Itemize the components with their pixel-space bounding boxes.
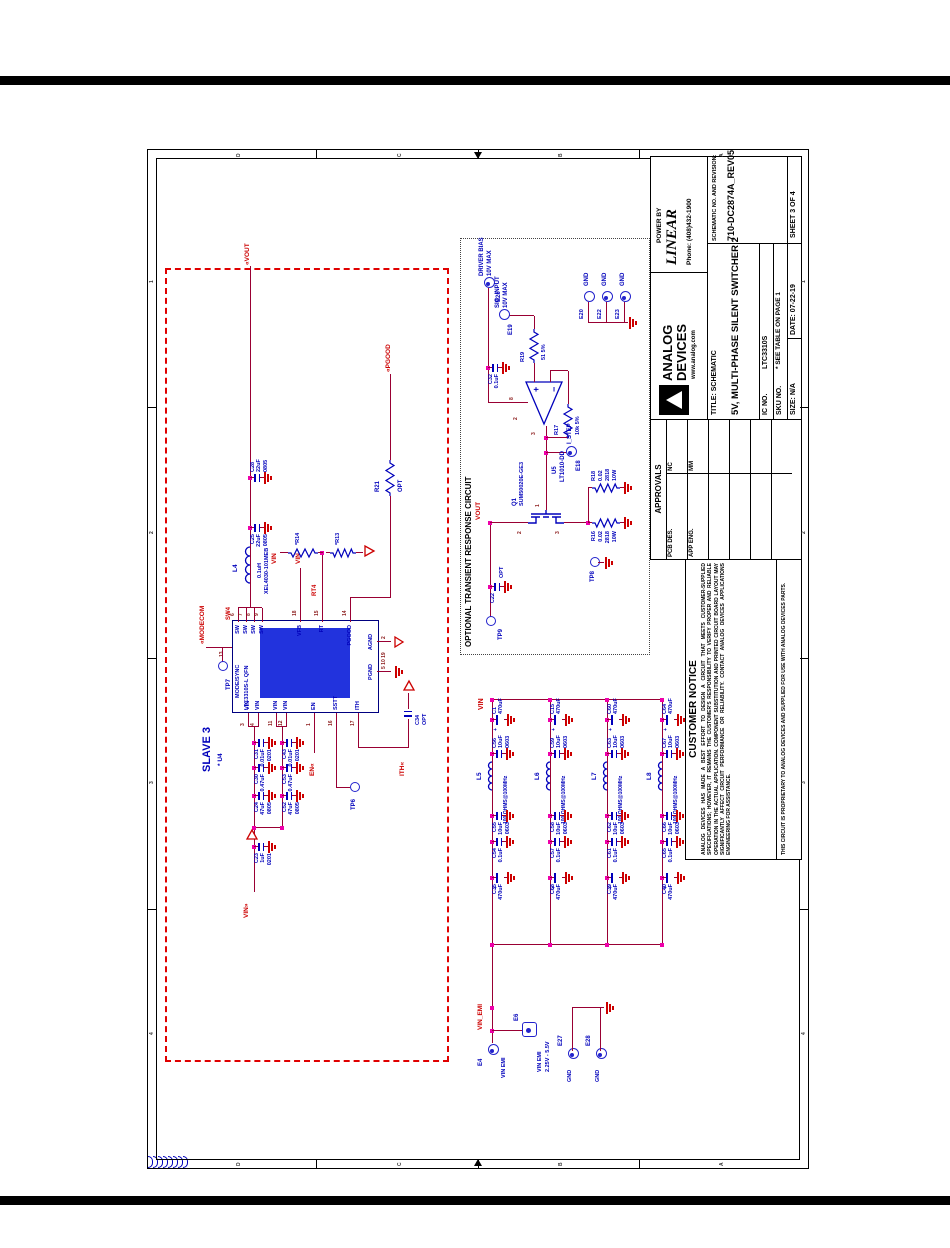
wire: [358, 747, 408, 748]
ground-icon: [632, 319, 634, 327]
ground-icon: [683, 876, 685, 880]
ground-icon: [679, 750, 681, 758]
pin-number: 5 10 19: [382, 652, 387, 669]
net-ith: ITH«: [400, 762, 407, 776]
center-mark-arrow: [474, 1159, 482, 1166]
wire: [572, 1008, 573, 1051]
zone-label: 4: [149, 1032, 155, 1035]
zone-tick: [316, 1160, 317, 1168]
cap-label: 0.1uF: [495, 374, 501, 388]
cap-plate: [611, 812, 613, 820]
approvals-table: APPROVALS PCB DES.NCAPP ENG.MM: [650, 418, 802, 560]
cap-plate: [494, 583, 496, 591]
cap-plate: [496, 873, 498, 883]
resistor-icon: [288, 549, 318, 557]
ground-icon: [611, 561, 613, 565]
wire: [390, 374, 391, 460]
wire: [262, 608, 263, 622]
linear-logo: LINEAR: [665, 209, 680, 265]
wire: [490, 523, 491, 618]
inductor-icon: [655, 762, 664, 790]
ground-icon: [630, 486, 632, 490]
label: 2: [514, 417, 519, 420]
ground-icon: [570, 752, 572, 756]
zone-label: 1: [801, 280, 807, 283]
ground-icon: [570, 814, 572, 818]
approvals-row: APP ENG.MM: [687, 419, 708, 559]
label: E22: [598, 309, 604, 319]
junction-dot: [490, 698, 494, 702]
date-value: DATE: 07-22-19: [790, 284, 797, 335]
ground-icon: [506, 836, 508, 848]
wire: [572, 1007, 604, 1008]
ground-icon: [509, 838, 511, 846]
cap-plate: [259, 524, 261, 532]
label: R19: [521, 352, 527, 362]
label: SUM50020E-GE3: [520, 462, 526, 506]
inductor-label: L8: [647, 772, 654, 780]
ground-icon: [268, 762, 270, 774]
zone-tick: [800, 658, 808, 659]
cap-label: 0201: [268, 853, 274, 865]
approvals-row: [771, 419, 792, 559]
customer-notice-box: CUSTOMER NOTICE ANALOG DEVICES HAS MADE …: [685, 558, 778, 860]
cap-label: 0603: [506, 736, 512, 748]
ground-icon: [268, 737, 270, 749]
approval-role: [709, 473, 729, 559]
schematic-title: 5V, MULTI-PHASE SILENT SWITCHER 2: [731, 237, 741, 415]
label: 0.1uH: [258, 563, 264, 578]
label: +: [494, 728, 499, 731]
approval-role: [751, 473, 771, 559]
label: E27: [558, 1035, 564, 1046]
label: 10V MAX: [503, 282, 509, 308]
cap-plate: [671, 812, 673, 820]
resistor-icon: [330, 549, 356, 557]
ground-icon: [635, 321, 637, 325]
net-modecom: «MODECOM: [200, 606, 207, 644]
ground-icon: [395, 666, 397, 678]
ground-icon: [564, 810, 566, 822]
wire: [408, 693, 409, 709]
ground-icon: [627, 484, 629, 492]
cap-plate: [497, 364, 499, 372]
pin-name: RT: [320, 625, 326, 632]
label: +: [552, 728, 557, 731]
cap-label: 0201: [296, 749, 302, 761]
approvals-row: PCB DES.NC: [666, 419, 687, 559]
wire: [550, 370, 568, 371]
zone-tick: [639, 150, 640, 158]
approval-role: [730, 473, 750, 559]
turret-icon: [584, 292, 595, 303]
approval-role: [772, 473, 792, 559]
label: * U4: [218, 753, 225, 766]
revision-cell: SCHEMATIC NO. AND REVISION: 710-DC2874A_…: [707, 157, 788, 244]
wire: [377, 671, 391, 672]
net-pgood: «PGOOD: [386, 344, 393, 372]
ground-icon: [676, 810, 678, 822]
net-en: EN«: [310, 763, 317, 776]
open-arrow-icon: [246, 828, 258, 840]
cap-label: 470uF: [614, 698, 620, 714]
cap-label: 470uF: [557, 884, 563, 900]
approvals-row: [708, 419, 729, 559]
ground-icon: [299, 792, 301, 800]
inductor-label: L7: [592, 772, 599, 780]
revision-label: SCHEMATIC NO. AND REVISION:: [713, 155, 719, 241]
turret-dot: [598, 1053, 602, 1057]
open-arrow-icon: [364, 545, 376, 557]
cap-label: 470uF: [614, 884, 620, 900]
ground-icon: [296, 737, 298, 749]
opamp-icon: +−: [524, 380, 564, 426]
zone-label: A: [719, 153, 725, 157]
junction-dot: [605, 943, 609, 947]
agnd-arrow-icon: [394, 636, 404, 648]
ground-icon: [567, 838, 569, 846]
ground-icon: [609, 1004, 611, 1012]
label: OPT: [423, 714, 429, 725]
ground-icon: [567, 812, 569, 820]
wire: [336, 727, 337, 788]
pin-name: SW: [252, 625, 258, 634]
junction-dot: [280, 826, 284, 830]
title-label: TITLE: SCHEMATIC: [711, 350, 718, 415]
zone-label: 1: [149, 280, 155, 283]
cap-plate: [496, 715, 498, 725]
label: 51 5%: [542, 344, 548, 360]
label: +: [609, 728, 614, 731]
cap-label: 0.47uF: [289, 774, 295, 791]
ground-icon: [512, 840, 514, 844]
label: TP9: [498, 629, 504, 640]
pin-name: EN: [312, 702, 318, 710]
pin-number: 2: [382, 636, 387, 639]
ground-icon: [564, 748, 566, 760]
zone-tick: [800, 909, 808, 910]
label: 2.25V - 5.5V: [546, 1041, 552, 1072]
cap-plate: [666, 873, 668, 883]
ground-icon: [627, 752, 629, 756]
zone-label: 3: [801, 781, 807, 784]
zone-label: C: [397, 153, 403, 157]
ground-icon: [509, 812, 511, 820]
ground-icon: [677, 872, 679, 884]
cap-plate: [286, 764, 288, 772]
ground-icon: [682, 752, 684, 756]
cap-plate: [254, 524, 256, 532]
cap-plate: [286, 739, 288, 747]
pin-number: 3: [241, 723, 246, 726]
customer-notice-body: ANALOG DEVICES HAS MADE A BEST EFFORT TO…: [699, 559, 734, 859]
cap-label: 470uF: [669, 698, 675, 714]
label: *R14: [296, 533, 302, 545]
resistor-icon: [386, 460, 394, 496]
junction-dot: [548, 698, 552, 702]
ground-icon: [624, 750, 626, 758]
cap-label: 0805: [296, 802, 302, 814]
pin-number: 14: [343, 610, 348, 616]
ground-icon: [608, 559, 610, 567]
ground-icon: [564, 836, 566, 848]
wire: [564, 522, 588, 523]
pin-name: SW: [244, 625, 250, 634]
bottom-black-bar: [0, 1196, 950, 1205]
junction-dot: [490, 943, 494, 947]
turret-icon: [499, 310, 510, 321]
zone-tick: [148, 658, 156, 659]
label: TP6: [351, 799, 357, 810]
ground-icon: [271, 792, 273, 800]
ground-icon: [622, 872, 624, 884]
approval-initials: [730, 469, 750, 473]
testpoint-icon: [350, 782, 360, 792]
phone-label: Phone: (408)432-1900: [687, 199, 694, 265]
wire: [248, 726, 259, 727]
ground-icon: [628, 876, 630, 880]
junction-dot: [660, 698, 664, 702]
inductor-icon: [543, 762, 552, 790]
label: 3: [556, 531, 561, 534]
ground-icon: [627, 814, 629, 818]
cap-plate: [496, 812, 498, 820]
ground-icon: [507, 714, 509, 726]
testpoint-icon: [486, 616, 496, 626]
net-vin-emi: VIN_EMI: [478, 1004, 485, 1030]
cap-plate: [501, 812, 503, 820]
zone-label: 2: [801, 531, 807, 534]
cap-label: 0805: [264, 534, 270, 546]
ground-icon: [680, 874, 682, 882]
zone-label: 2: [149, 531, 155, 534]
schematic-sheet: MODE/SYNCLTC3310S-L QFNSLAVE 3* U43VIN4V…: [148, 150, 808, 1168]
cap-label: 0603: [621, 822, 627, 834]
sheet-cell: SHEET 3 OF 4: [787, 157, 801, 244]
wire: [534, 316, 535, 329]
approval-initials: MM: [688, 459, 708, 473]
wire: [492, 1030, 522, 1031]
cap-plate: [616, 838, 618, 846]
ground-icon: [274, 845, 276, 849]
wire: [624, 302, 625, 323]
junction-dot: [548, 943, 552, 947]
ground-icon: [506, 810, 508, 822]
cap-label: 0201: [268, 749, 274, 761]
net-vout: «VOUT: [245, 243, 252, 265]
zone-label: B: [558, 153, 564, 157]
junction-dot: [490, 1006, 494, 1010]
open-arrow-icon: [403, 679, 415, 691]
wire: [322, 608, 323, 622]
proprietary-text: THIS CIRCUIT IS PROPRIETARY TO ANALOG DE…: [777, 559, 792, 859]
ground-icon: [568, 874, 570, 882]
testpoint-icon: [218, 661, 228, 671]
cap-plate: [258, 764, 260, 772]
ground-icon: [268, 841, 270, 853]
ground-icon: [624, 838, 626, 846]
proprietary-box: THIS CIRCUIT IS PROPRIETARY TO ANALOG DE…: [776, 558, 802, 860]
label: Q1: [512, 498, 518, 506]
turret-dot: [490, 1049, 494, 1053]
cap-plate: [258, 843, 260, 851]
cap-plate: [671, 750, 673, 758]
wire: [350, 608, 351, 622]
ground-icon: [302, 794, 304, 798]
wire: [492, 699, 662, 700]
ground-icon: [510, 874, 512, 882]
cap-plate: [611, 750, 613, 758]
approvals-row: [750, 419, 771, 559]
wire: [606, 302, 607, 323]
ground-icon: [676, 836, 678, 848]
brand-analog: ANALOG: [661, 325, 674, 381]
pin-name: SSTT: [334, 696, 340, 710]
wire: [254, 827, 282, 828]
turret-dot: [570, 1053, 574, 1057]
label: VIN EMI: [538, 1052, 544, 1072]
ground-icon: [271, 764, 273, 772]
wire: [218, 647, 232, 648]
ground-icon: [624, 482, 626, 494]
wire: [568, 371, 569, 404]
cap-plate: [263, 792, 265, 800]
label: E6: [514, 1014, 520, 1021]
turret-dot: [568, 451, 572, 455]
cap-label: 0603: [676, 736, 682, 748]
zone-label: D: [236, 153, 242, 157]
cap-label: 0603: [506, 822, 512, 834]
wire: [258, 713, 259, 727]
pin-number: 7: [239, 613, 244, 616]
ground-icon: [627, 519, 629, 527]
ground-icon: [264, 472, 266, 484]
wire: [248, 713, 249, 727]
wire: [336, 713, 337, 727]
size-value: SIZE: N/A: [790, 383, 797, 415]
pin-name: PGND: [369, 664, 375, 680]
ground-icon: [270, 526, 272, 530]
cap-plate: [259, 474, 261, 482]
label: 10V MAX: [487, 250, 493, 276]
resistor-icon: [564, 404, 572, 438]
ground-icon: [264, 522, 266, 534]
schematic-page: { "title_block": { "brand_line1": "ANALO…: [0, 0, 950, 1248]
ground-icon: [513, 718, 515, 722]
pin-number: 9: [255, 613, 260, 616]
wire: [318, 552, 323, 553]
resistor-icon: [592, 484, 620, 492]
wire: [276, 713, 277, 727]
cap-plate: [499, 583, 501, 591]
cap-plate: [291, 792, 293, 800]
ground-icon: [510, 716, 512, 724]
zone-label: 4: [801, 1032, 807, 1035]
title-cell: TITLE: SCHEMATIC 5V, MULTI-PHASE SILENT …: [707, 243, 760, 419]
label: 2818: [606, 531, 612, 543]
label: 8: [510, 397, 515, 400]
ground-icon: [513, 876, 515, 880]
ground-icon: [682, 814, 684, 818]
ground-icon: [621, 748, 623, 760]
wire: [336, 787, 350, 788]
size-cell: SIZE: N/A: [787, 338, 801, 419]
ground-icon: [505, 364, 507, 372]
ground-icon: [570, 840, 572, 844]
cap-plate: [254, 474, 256, 482]
approval-role: APP ENG.: [688, 473, 708, 559]
approvals-rows: PCB DES.NCAPP ENG.MM: [666, 419, 792, 559]
title-block: ANALOG DEVICES www.analog.com POWER BY L…: [650, 156, 802, 420]
date-cell: DATE: 07-22-19: [787, 243, 801, 339]
junction-dot: [605, 698, 609, 702]
cap-label: 470uF: [557, 698, 563, 714]
net-vin-flag: VIN»: [244, 904, 251, 918]
ground-icon: [502, 362, 504, 374]
cap-plate: [496, 838, 498, 846]
label: R16: [592, 531, 598, 541]
ground-icon: [296, 790, 298, 802]
label: +: [664, 728, 669, 731]
ground-icon: [270, 476, 272, 480]
approval-role: PCB DES.: [667, 473, 687, 559]
ground-icon: [682, 840, 684, 844]
inductor-icon: [485, 762, 494, 790]
ground-icon: [629, 317, 631, 329]
label: *R13: [336, 533, 342, 545]
cap-plate: [554, 715, 556, 725]
cap-plate: [404, 711, 412, 713]
zone-tick: [148, 407, 156, 408]
net-vin-filter: VIN: [478, 698, 485, 710]
approval-initials: NC: [667, 460, 687, 473]
cap-label: 0805: [268, 802, 274, 814]
pin-name: VIN: [284, 701, 290, 710]
net-rt4: RT4: [312, 585, 318, 596]
top-black-bar: [0, 76, 950, 85]
label: E23: [616, 309, 622, 319]
zone-label: 3: [149, 781, 155, 784]
cap-plate: [554, 750, 556, 758]
wire: [356, 552, 363, 553]
pin-name: VIN: [246, 701, 252, 710]
ground-icon: [565, 714, 567, 726]
cap-plate: [671, 838, 673, 846]
ground-icon: [512, 814, 514, 818]
wire: [490, 522, 528, 523]
pin-number: 18: [293, 610, 298, 616]
wire: [598, 562, 604, 563]
cap-plate: [263, 739, 265, 747]
cap-plate: [666, 750, 668, 758]
approvals-row: [729, 419, 750, 559]
cap-label: 470uF: [499, 698, 505, 714]
ground-icon: [612, 1006, 614, 1010]
wire: [488, 288, 489, 403]
cap-plate: [286, 792, 288, 800]
pin-number: 1: [307, 723, 312, 726]
wire: [350, 597, 351, 608]
wire: [314, 727, 315, 753]
wire: [358, 713, 359, 727]
cap-plate: [666, 715, 668, 725]
ground-icon: [676, 748, 678, 760]
cap-plate: [554, 838, 556, 846]
label: OPT: [500, 567, 506, 578]
wire: [588, 322, 628, 323]
ground-icon: [274, 741, 276, 745]
ground-icon: [606, 1002, 608, 1014]
